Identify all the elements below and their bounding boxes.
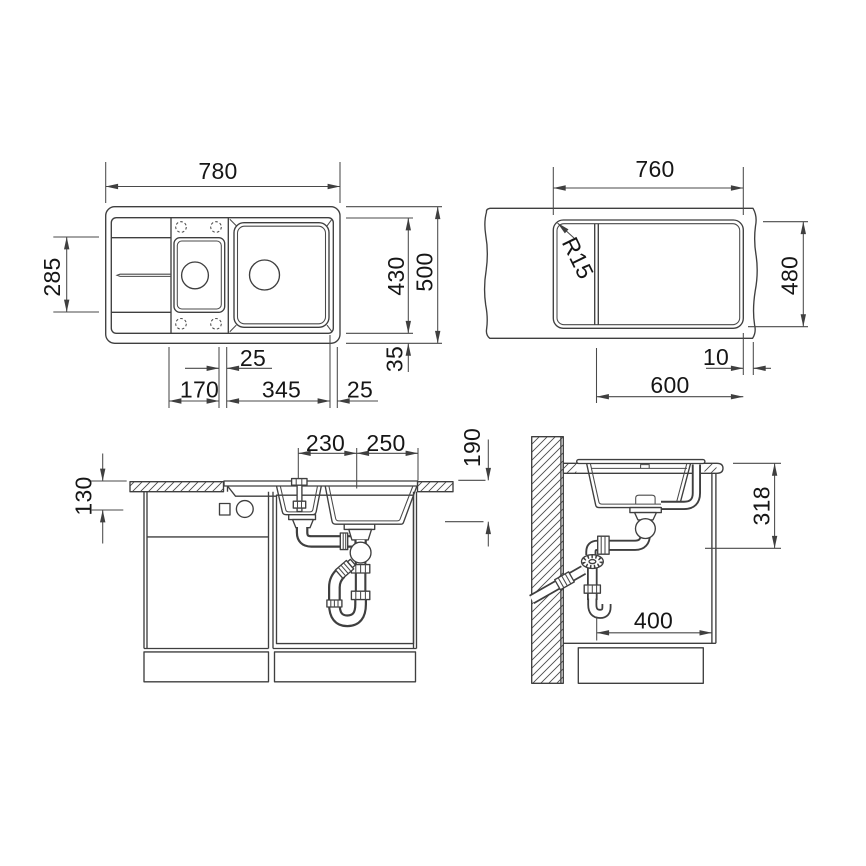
tap-hole [176, 222, 187, 233]
dim-small-bowl-depth: 130 [71, 476, 97, 515]
large-bowl-drain [250, 260, 280, 290]
dim-cutout-length: 600 [650, 372, 689, 398]
dim-cutout-width: 760 [635, 156, 674, 182]
dim-edge-offset: 10 [703, 344, 729, 370]
dimension-drawing-canvas: 780 285 430 500 35 25 170 345 25 [0, 0, 866, 866]
cutout-view: 760 R15 480 10 600 [485, 156, 808, 403]
worktop-hatch-left [130, 482, 224, 492]
plan-labels: 780 285 430 500 35 25 170 345 25 [39, 158, 438, 403]
dishwasher-knob [236, 501, 253, 518]
front-view: 230 250 130 190 [71, 428, 489, 682]
drainboard-groove [117, 274, 171, 276]
side-wall [532, 437, 564, 684]
dim-mounting-depth: 318 [749, 486, 775, 525]
large-bowl [234, 223, 329, 328]
dim-basin-area-depth: 430 [383, 256, 409, 295]
drain-flange [630, 508, 661, 513]
front-dimensions [88, 440, 488, 547]
tap-hole [211, 222, 222, 233]
sink-inner-rim [111, 218, 333, 334]
worktop-slab [485, 208, 758, 338]
small-bowl-drain [182, 262, 209, 289]
front-labels: 230 250 130 190 [71, 428, 485, 516]
dim-drain-clearance: 400 [634, 608, 673, 634]
plinth-right [275, 652, 416, 682]
worktop-hatch-right [418, 482, 454, 492]
side-view: 318 400 [532, 437, 781, 684]
sink-outline [106, 207, 340, 344]
plan-view: 780 285 430 500 35 25 170 345 25 [39, 158, 442, 408]
front-cabinet [144, 492, 417, 682]
sink-rim-front [224, 481, 418, 486]
dim-overall-depth: 500 [412, 252, 438, 291]
plinth-left [144, 652, 269, 682]
tap-hole-cap [292, 479, 307, 486]
dim-overall-width: 780 [198, 158, 237, 184]
dim-divider-to-edge: 250 [366, 430, 405, 456]
wall-hatch [532, 437, 564, 684]
strainer [636, 495, 655, 504]
pipe-nut [598, 536, 609, 554]
side-plumbing [582, 508, 662, 614]
front-sink [224, 479, 418, 525]
large-bowl-section [325, 486, 417, 524]
dishwasher-switch [220, 504, 231, 516]
dim-tap-to-divider: 230 [306, 430, 345, 456]
dim-cutout-depth: 480 [777, 256, 803, 295]
large-drain-flange [344, 524, 375, 529]
pipe-nut [340, 533, 347, 550]
sink-rim-section [577, 460, 705, 464]
plan-sink-geometry [106, 207, 340, 344]
front-plumbing [289, 515, 375, 621]
tap-hole [211, 319, 222, 330]
trap-ball-joint [350, 542, 371, 563]
small-drain-flange [289, 515, 316, 520]
technical-drawing: 780 285 430 500 35 25 170 345 25 [0, 0, 866, 866]
ball-joint [636, 519, 656, 539]
tap-hole [176, 319, 187, 330]
dim-large-bowl-width: 345 [262, 377, 301, 403]
dim-right-margin: 25 [347, 377, 373, 403]
dim-large-bowl-depth: 190 [459, 428, 485, 467]
plinth-side [578, 648, 703, 684]
dim-small-bowl-width: 170 [180, 377, 219, 403]
cutout-geometry [485, 208, 758, 338]
dim-drainboard-depth: 285 [39, 257, 65, 296]
dim-edge-margin: 35 [382, 346, 408, 372]
dim-bowl-gap: 25 [240, 345, 266, 371]
